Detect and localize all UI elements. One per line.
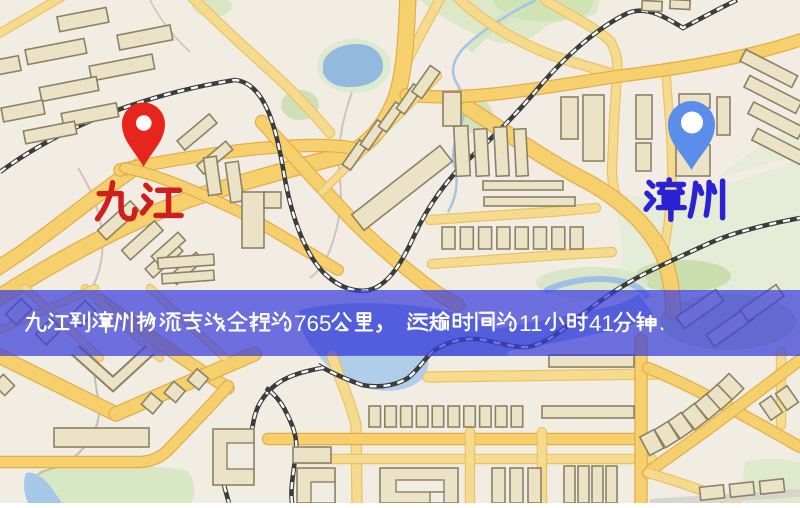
svg-text:765: 765 (294, 311, 332, 336)
svg-text:11: 11 (519, 311, 542, 336)
svg-text:41: 41 (589, 311, 614, 336)
